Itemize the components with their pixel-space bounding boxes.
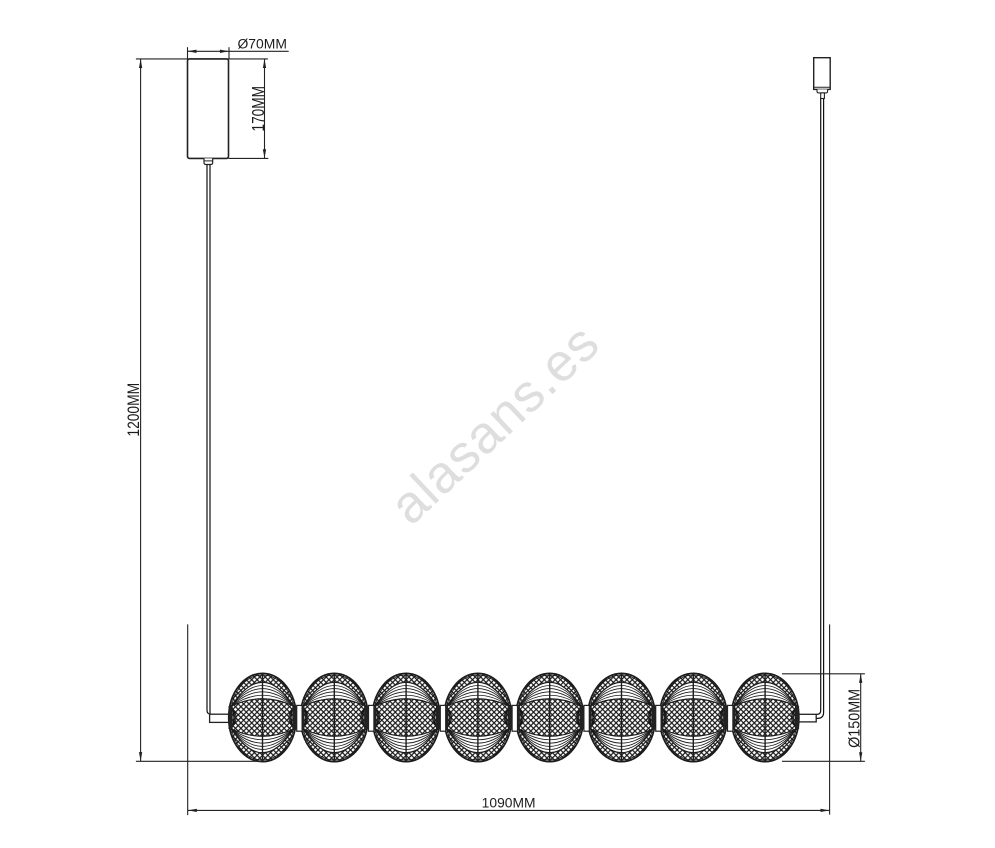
svg-text:1090MM: 1090MM: [482, 796, 536, 811]
svg-text:Ø150MM: Ø150MM: [846, 689, 863, 748]
svg-text:Ø70MM: Ø70MM: [238, 37, 287, 52]
svg-text:1200MM: 1200MM: [124, 383, 143, 437]
svg-text:170MM: 170MM: [248, 86, 268, 132]
